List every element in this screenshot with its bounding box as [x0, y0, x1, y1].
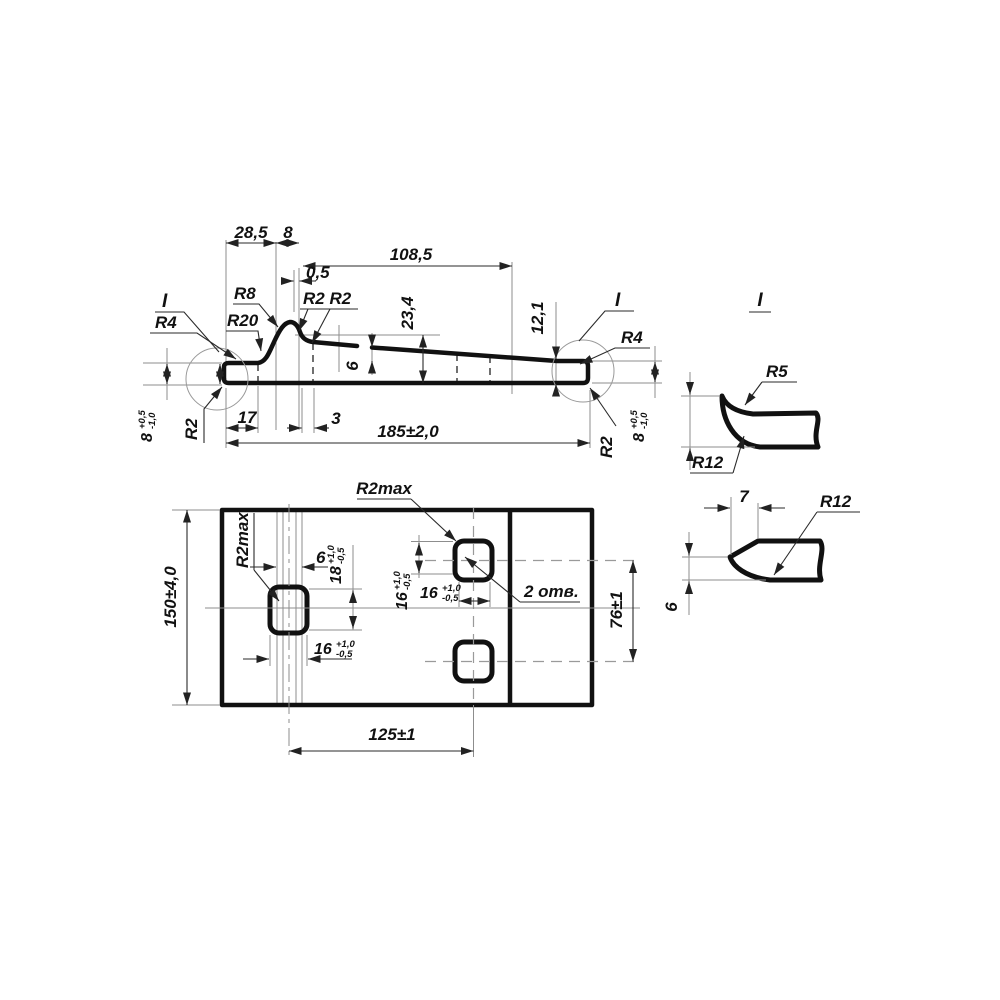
dim-18-sub: -0,5	[336, 547, 347, 564]
label-r4-left: R4	[150, 313, 236, 359]
plan-view: 150±4,0 6 18 +1,0 -0,5 16	[161, 479, 640, 760]
dim-28-5: 28,5	[226, 223, 276, 243]
dim-3-label: 3	[331, 409, 341, 428]
dim-12-1-label: 12,1	[528, 301, 547, 334]
dim-23-4: 23,4	[398, 296, 423, 383]
r4-left-label: R4	[155, 313, 177, 332]
label-r5: R5	[745, 362, 797, 405]
dim-0-5-label: 0,5	[306, 263, 330, 282]
dim-12-1: 12,1	[528, 301, 556, 392]
dim-16-right-h-sub: -0,5	[442, 593, 459, 604]
dim-16-right-horizontal: 16 +1,0 -0,5	[420, 582, 490, 607]
label-r2-bottom-right: R2	[590, 388, 616, 458]
engineering-drawing: 28,5 8 108,5 0,5 23,4 6 12,1	[0, 0, 1000, 1000]
dim-height8-left: 8 +0,5 -1,0	[137, 348, 220, 442]
detail-top-shape	[722, 396, 818, 447]
dim-76: 76±1	[607, 561, 633, 662]
dim-18-value: 18	[328, 566, 345, 584]
holes-note-label: 2 отв.	[523, 582, 579, 601]
r20-label: R20	[227, 311, 259, 330]
dim-108-5: 108,5	[303, 245, 512, 266]
dim-108-5-label: 108,5	[390, 245, 433, 264]
dim-28-5-label: 28,5	[233, 223, 268, 242]
r2max-left-label: R2max	[233, 511, 252, 568]
dim-185: 185±2,0	[226, 422, 590, 443]
dim-150-label: 150±4,0	[161, 566, 180, 628]
r12-top-label: R12	[692, 453, 724, 472]
dim-6-detail-label: 6	[662, 602, 681, 612]
r2max-top-label: R2max	[356, 479, 413, 498]
label-r2-bottom-left: R2	[182, 387, 222, 443]
plan-centerlines	[205, 504, 640, 760]
r12-bottom-label: R12	[820, 492, 852, 511]
detail-view-bottom: 7 R12 6	[662, 487, 860, 615]
dim-76-label: 76±1	[607, 591, 626, 629]
dim-16-right-v-value: 16	[394, 592, 411, 610]
label-r12-top: R12	[690, 436, 744, 473]
dim-125: 125±1	[289, 725, 474, 751]
detail-circle-right	[552, 340, 614, 402]
drawing-sheet: 28,5 8 108,5 0,5 23,4 6 12,1	[0, 0, 1000, 1000]
dim-8-label: 8	[283, 223, 293, 242]
dim-height8-right-value: 8	[631, 433, 648, 442]
dim-height8-right-sub: -1,0	[639, 412, 650, 429]
profile-view: 28,5 8 108,5 0,5 23,4 6 12,1	[137, 223, 662, 458]
r8-label: R8	[234, 284, 256, 303]
dim-height8-left-value: 8	[139, 433, 156, 442]
dim-7-label: 7	[739, 487, 750, 506]
dim-16-right-v-sub: -0,5	[402, 573, 413, 590]
dim-185-label: 185±2,0	[377, 422, 439, 441]
dim-16-left: 16 +1,0 -0,5	[243, 635, 355, 666]
r5-label: R5	[766, 362, 788, 381]
dim-8: 8	[276, 223, 299, 243]
label-r4-right: R4	[580, 328, 650, 364]
dim-height8-left-sub: -1,0	[147, 412, 158, 429]
detail-circle-left	[186, 348, 248, 410]
r2r2-label: R2 R2	[303, 289, 352, 308]
dim-23-4-label: 23,4	[398, 296, 417, 331]
profile-extension-lines	[143, 240, 662, 448]
dim-17: 17	[226, 408, 258, 428]
dim-height8-right: 8 +0,5 -1,0	[629, 346, 655, 442]
profile-part-outline-right	[224, 348, 588, 384]
detail-ref-left-label: I	[162, 291, 168, 312]
dim-17-label: 17	[238, 408, 258, 427]
dim-6-plan-label: 6	[316, 548, 326, 567]
dim-16-right-h-value: 16	[420, 585, 438, 602]
dim-0-5: 0,5	[281, 263, 330, 282]
dim-16-left-value: 16	[314, 641, 332, 658]
detail-ref-right-label: I	[615, 290, 621, 311]
detail-bottom-shape	[730, 541, 822, 580]
r2-bottom-left-label: R2	[182, 418, 201, 440]
dim-16-left-sub: -0,5	[336, 649, 353, 660]
detail-view-top: I R5 R12	[681, 290, 818, 473]
r2-bottom-right-label: R2	[597, 436, 616, 458]
dim-6-blade-label: 6	[343, 361, 362, 371]
detail-top-title: I	[757, 290, 763, 311]
r4-right-label: R4	[621, 328, 643, 347]
label-r20: R20	[226, 311, 261, 351]
dim-125-label: 125±1	[368, 725, 415, 744]
